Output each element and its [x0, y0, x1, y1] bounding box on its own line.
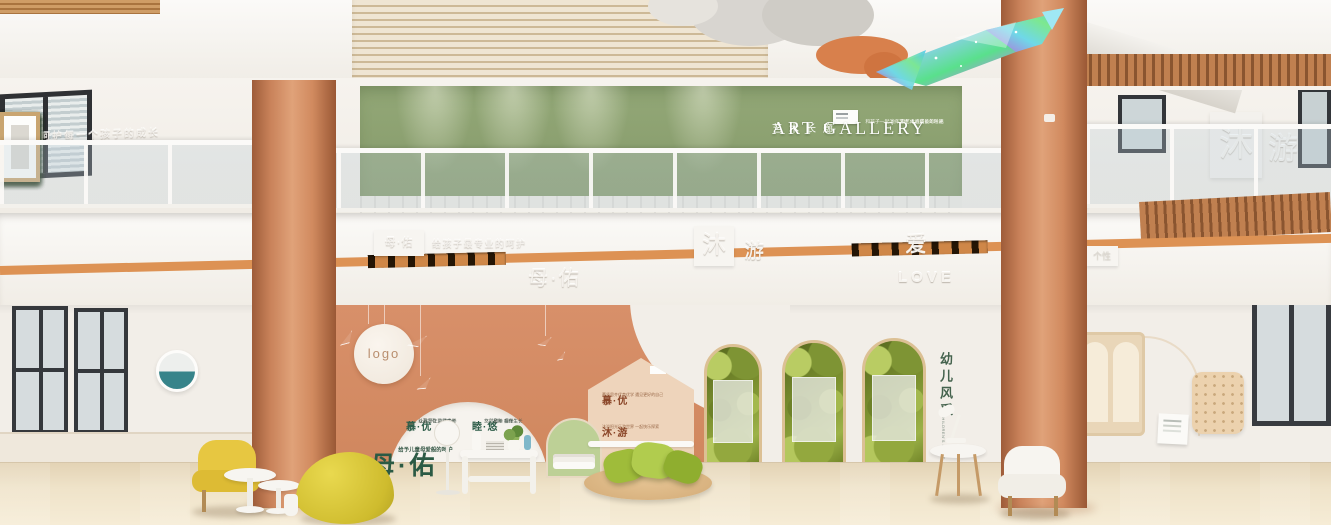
balcony-railing-center [253, 148, 1087, 212]
console-table-leg [462, 456, 468, 494]
console-table-leg [530, 456, 536, 494]
lower-left-window [74, 308, 128, 434]
band-love-cn: 爱 [905, 227, 927, 259]
console-table-shelf [468, 476, 532, 482]
chair-leg [1008, 496, 1012, 516]
floor-lamp-head [434, 420, 460, 446]
lobby-render: 用心呵护每一个孩子的成长 ART GALLERY 艺术长廊 用艺术点亮童年时光 … [0, 0, 1331, 525]
chair-leg [1054, 496, 1058, 516]
house-line-1: 慕贤思齐优育优学 遇见更好的自己 [602, 392, 688, 398]
round-wall-mirror [156, 350, 198, 392]
balcony-railing-left [0, 140, 254, 208]
house-line-2: 沐浴阳光乐游世界 一起快乐探索 [602, 424, 688, 430]
arch-shelf [553, 454, 595, 469]
art-gallery-tagline-2: 和孩子一起演绎艺术 体验成长的乐趣 [773, 118, 944, 125]
white-floor-vase [284, 494, 298, 516]
band-love-en: LOVE [898, 269, 955, 286]
lower-left-window [12, 306, 68, 434]
side-table-base [236, 506, 264, 513]
frosted-glass-panel [792, 377, 836, 442]
band-center-boxed-char: 沐 [694, 226, 734, 266]
light-switch [1044, 114, 1055, 122]
white-armchair-seat [998, 474, 1066, 498]
band-left-badge: 母·佑 [374, 230, 424, 256]
lower-right-window [1252, 300, 1331, 426]
band-center-char: 游 [744, 235, 764, 264]
potted-plant-pot [508, 440, 520, 451]
band-left-caption: 给孩子最专业的呵护 [432, 237, 527, 250]
ceiling-wood-slats-left [0, 0, 160, 14]
chair-leg [202, 490, 206, 512]
botanical-arch-niche [782, 340, 846, 476]
frosted-glass-panel [713, 380, 753, 443]
floor-lamp-pole [446, 446, 449, 492]
green-arch-niche [546, 418, 602, 478]
logo-disc: logo [354, 324, 414, 384]
table-leg [957, 454, 960, 496]
balcony-fascia-band: 母·佑 给孩子最专业的呵护 沐 游 爱 LOVE 母·佑 南 MUYOU 个性 [0, 213, 1331, 305]
hanging-wire [545, 302, 546, 336]
decor-bottle [524, 435, 531, 450]
orange-accent-stripe [0, 234, 1331, 275]
console-table-top [460, 450, 538, 458]
wall-label-card [1157, 413, 1189, 445]
hanging-wire [368, 302, 369, 324]
pegboard-decor [1192, 372, 1244, 434]
band-right-tag: 个性 [1086, 246, 1118, 266]
botanical-arch-niche [862, 338, 926, 476]
decor-vase [472, 432, 481, 450]
band-brand-name: 母·佑 [528, 262, 581, 291]
iridescent-airplane-sculpture [866, 0, 1094, 92]
floor-lamp-base [436, 490, 460, 495]
frosted-glass-panel [872, 375, 916, 441]
botanical-arch-niche [704, 344, 762, 476]
terracotta-column-left [252, 80, 336, 508]
decor-books [486, 441, 504, 450]
desk-lamp-base [946, 438, 966, 443]
